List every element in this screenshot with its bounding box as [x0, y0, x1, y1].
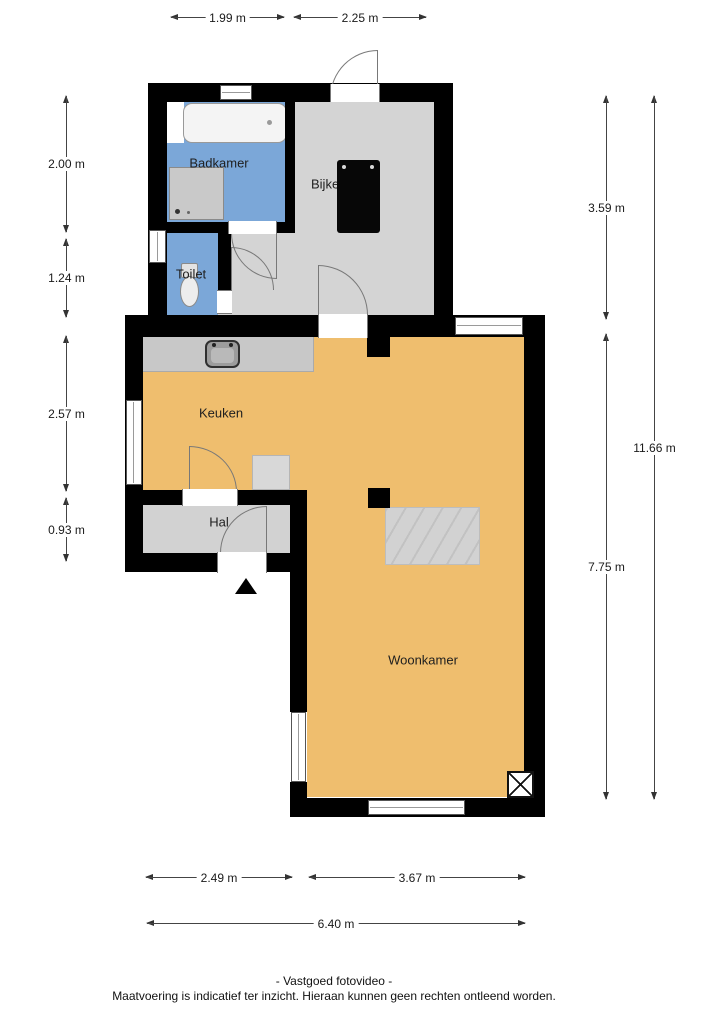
- window: [368, 800, 465, 815]
- dimension-left-1: 2.00 m: [59, 95, 74, 233]
- window: [149, 230, 166, 263]
- room-label-toilet: Toilet: [176, 267, 206, 282]
- floor-plan: Badkamer Bijkeuken Toilet Keuken Hal Woo…: [0, 0, 724, 1024]
- window: [126, 400, 142, 485]
- room-label-woonkamer: Woonkamer: [388, 653, 458, 668]
- wall: [125, 553, 307, 572]
- dimension-top-2: 2.25 m: [293, 10, 427, 25]
- washing-machine: [337, 160, 380, 233]
- door-opening: [217, 290, 232, 314]
- footer: - Vastgoed fotovideo - Maatvoering is in…: [0, 974, 668, 1004]
- wall: [368, 488, 390, 508]
- footer-disclaimer: Maatvoering is indicatief ter inzicht. H…: [0, 989, 668, 1004]
- dimension-label: 7.75 m: [584, 560, 629, 574]
- shower: [169, 167, 224, 220]
- window: [220, 85, 252, 100]
- fireplace-symbol: [507, 771, 534, 798]
- dimension-right-1: 3.59 m: [599, 95, 614, 320]
- bathtub-faucet-icon: [267, 120, 272, 125]
- bathtub: [183, 103, 287, 143]
- wall: [290, 490, 307, 712]
- dimension-label: 3.67 m: [395, 871, 440, 885]
- dimension-label: 11.66 m: [629, 441, 679, 455]
- wall: [148, 83, 167, 337]
- dimension-label: 1.99 m: [205, 11, 250, 25]
- wall: [524, 315, 545, 817]
- footer-branding: - Vastgoed fotovideo -: [0, 974, 668, 989]
- dimension-bottom-1: 2.49 m: [145, 870, 293, 885]
- door-opening: [228, 221, 277, 234]
- window: [455, 317, 523, 335]
- door-opening: [182, 489, 238, 506]
- door-opening: [330, 84, 380, 102]
- dimension-left-4: 0.93 m: [59, 497, 74, 562]
- staircase: [385, 507, 480, 565]
- bathtub-shelf: [167, 102, 184, 143]
- dimension-bottom-3: 6.40 m: [146, 916, 526, 931]
- room-label-badkamer: Badkamer: [189, 156, 248, 171]
- dimension-label: 2.00 m: [44, 157, 89, 171]
- window: [291, 712, 306, 782]
- wall: [285, 95, 295, 228]
- faucet-dot-icon: [212, 343, 216, 347]
- dimension-label: 1.24 m: [44, 271, 89, 285]
- room-label-hal: Hal: [209, 515, 229, 530]
- door-opening: [318, 314, 368, 338]
- room-label-keuken: Keuken: [199, 406, 243, 421]
- wall: [148, 83, 453, 102]
- dimension-right-2: 7.75 m: [599, 333, 614, 800]
- entrance-arrow-icon: [235, 578, 257, 594]
- dimension-left-2: 1.24 m: [59, 238, 74, 318]
- dimension-label: 0.93 m: [44, 523, 89, 537]
- wall: [434, 83, 453, 337]
- dimension-bottom-2: 3.67 m: [308, 870, 526, 885]
- door-opening: [217, 552, 267, 573]
- dimension-left-3: 2.57 m: [59, 335, 74, 492]
- dimension-label: 2.57 m: [44, 407, 89, 421]
- dimension-label: 2.25 m: [338, 11, 383, 25]
- wall: [367, 337, 390, 357]
- faucet-dot-icon: [229, 343, 233, 347]
- dimension-label: 6.40 m: [314, 917, 359, 931]
- shower-drain-icon: [175, 209, 180, 214]
- dimension-right-3: 11.66 m: [647, 95, 662, 800]
- dimension-label: 2.49 m: [197, 871, 242, 885]
- dimension-label: 3.59 m: [584, 201, 629, 215]
- sink: [205, 340, 240, 368]
- washer-knob-icon: [342, 165, 346, 169]
- washer-knob-icon: [370, 165, 374, 169]
- cabinet: [252, 455, 290, 490]
- dimension-top-1: 1.99 m: [170, 10, 285, 25]
- shower-drain-icon: [187, 211, 190, 214]
